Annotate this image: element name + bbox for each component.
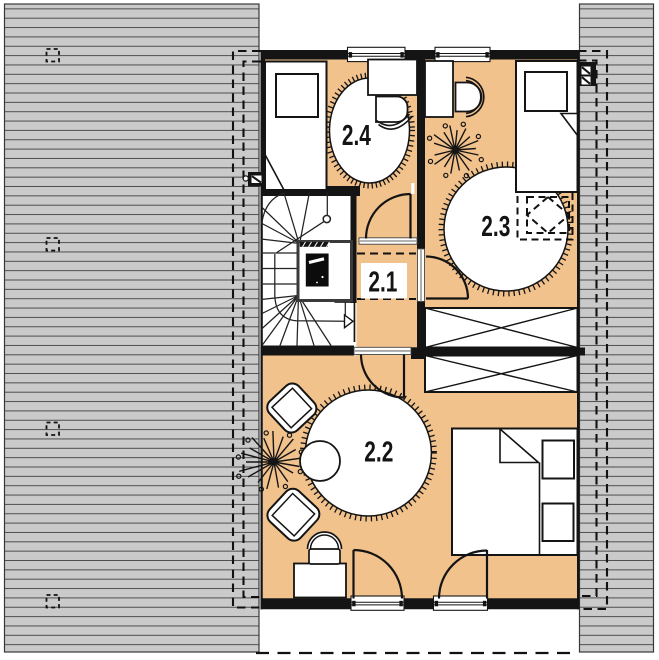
svg-text:2.2: 2.2 (364, 436, 393, 468)
svg-text:2.1: 2.1 (368, 267, 397, 299)
svg-text:2.4: 2.4 (342, 120, 371, 152)
svg-text:2.3: 2.3 (481, 211, 510, 243)
